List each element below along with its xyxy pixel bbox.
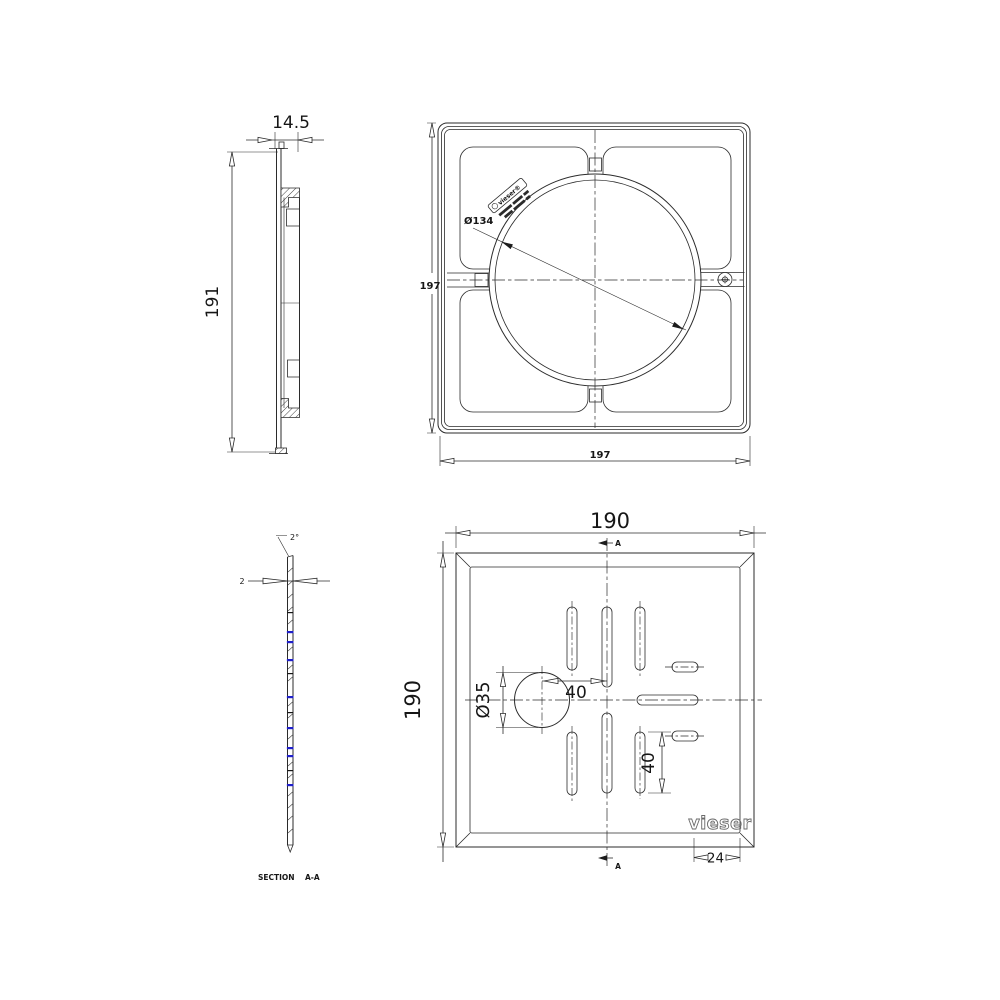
dim-hole-offset-label: 40 [565,683,587,703]
dim-back-height-label: 197 [420,281,441,292]
dim-back-width-label: 197 [590,450,611,461]
dim-side-height-label: 191 [203,286,223,318]
svg-text:A: A [615,862,621,871]
dim-side-width-label: 14.5 [272,113,310,133]
grate-slots [567,601,705,801]
section-hatch-ticks [288,568,293,833]
section-caption-ref: A-A [305,873,320,882]
dim-back-circle-label: Ø134 [464,215,493,227]
section-marker-bottom: A [598,855,621,871]
screw-detail [718,273,732,287]
section-marker-top: A [598,539,621,548]
dim-top-height-label: 190 [401,680,425,720]
dim-section-thickness-label: 2 [239,577,244,586]
dim-section-angle-label: 2° [290,533,299,542]
dim-slot-length-label: 40 [639,752,659,774]
svg-text:A: A [615,539,621,548]
dim-logo-width-label: 24 [707,851,724,867]
back-panel-view: Ø134 vieser® 197 197 [420,123,750,466]
section-aa-view: 2° 2 SECTION A-A [239,533,330,882]
top-grate-view: 190 190 A A Ø35 40 [401,509,766,871]
side-profile-view: 14.5 191 [203,113,324,454]
cad-drawing: 14.5 191 [0,0,1000,1000]
brand-logo: vieser [688,814,751,834]
dim-hole-diameter-label: Ø35 [473,681,494,718]
section-caption: SECTION [258,873,295,882]
technical-drawing-canvas: 14.5 191 [0,0,1000,1000]
dim-top-width-label: 190 [590,509,630,533]
